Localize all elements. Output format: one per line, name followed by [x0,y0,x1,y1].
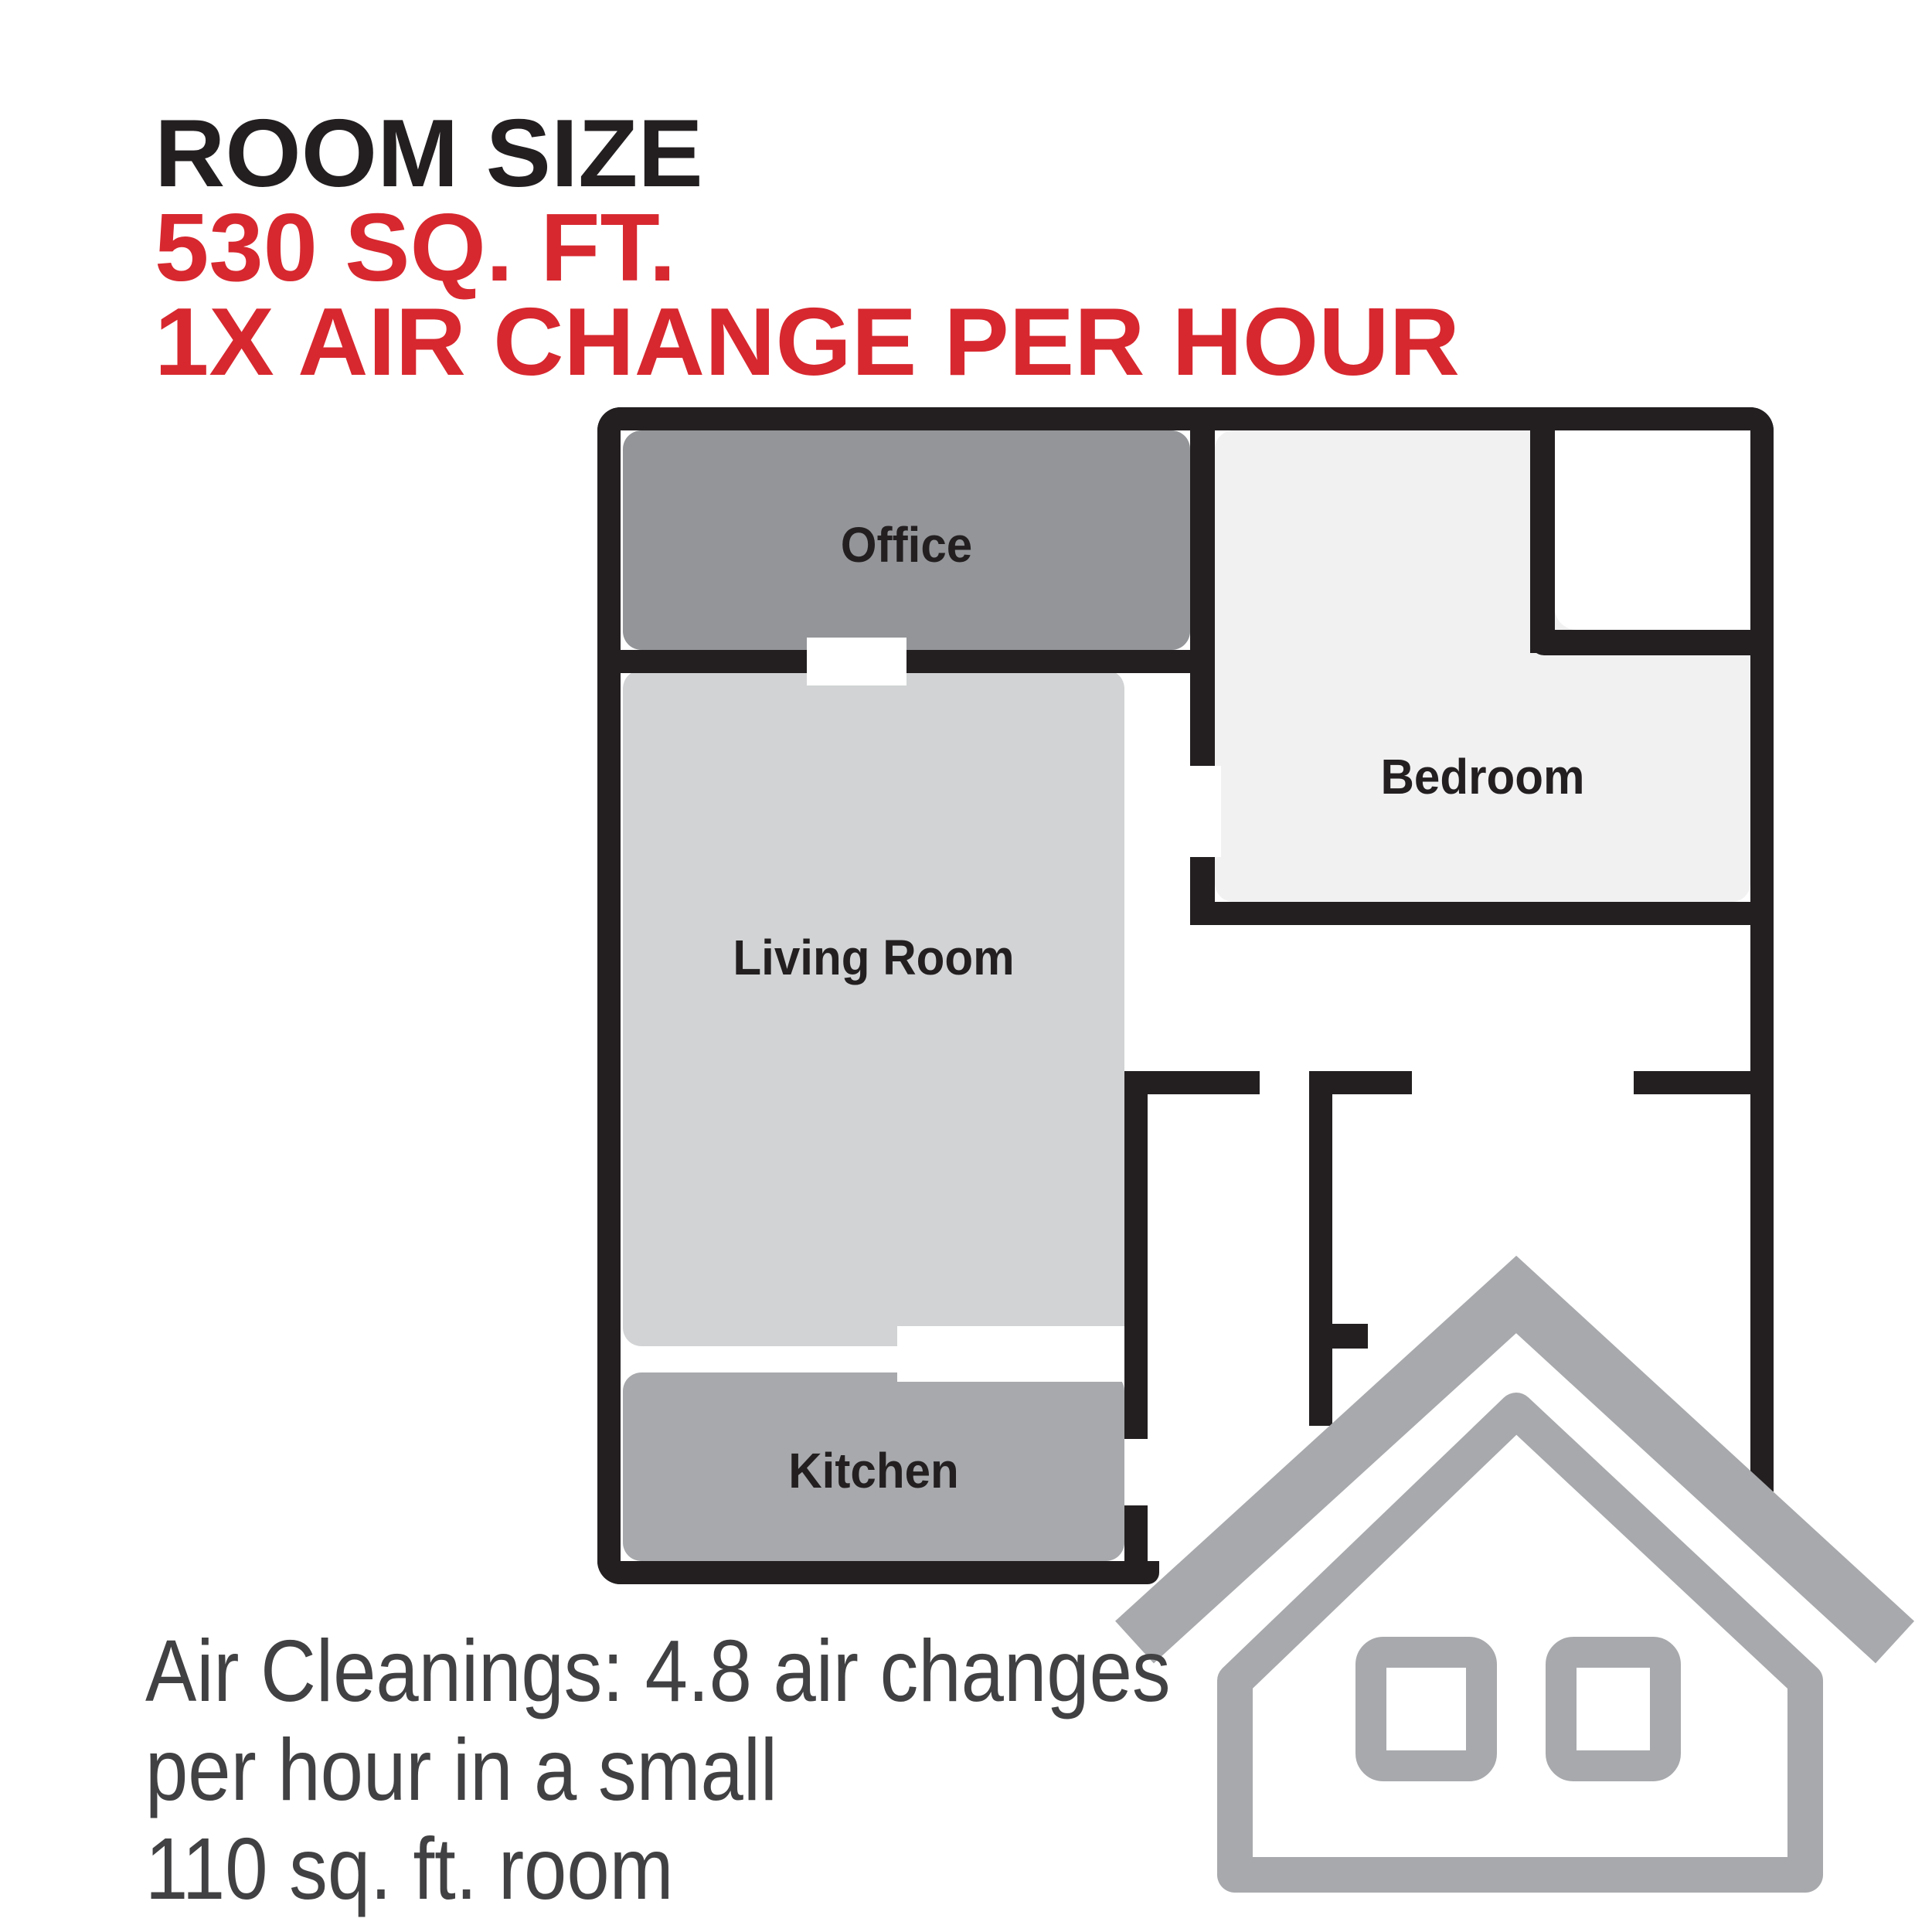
door-office [807,638,906,685]
wall-office-bedroom-divider [1190,407,1215,766]
wall-hall-top-a [1124,1071,1260,1094]
room-living [623,670,1124,1346]
header: ROOM SIZE 530 SQ. FT. 1X AIR CHANGE PER … [155,107,1434,389]
caption-line-2: per hour in a small [145,1720,1171,1819]
label-office: Office [640,516,1173,573]
wall-closet-bottom [1530,630,1774,655]
caption-line-3: 110 sq. ft. room [145,1819,1171,1918]
label-bedroom: Bedroom [1231,748,1734,805]
room-size-value: 530 SQ. FT. [155,201,1460,295]
door-bedroom [1184,766,1221,857]
bedroom-closet-cutout [1555,430,1750,630]
caption: Air Cleanings: 4.8 air changes per hour … [145,1621,1311,1918]
wall-outer-top [597,407,1774,430]
wall-outer-bottom [597,1561,1159,1584]
wall-bedroom-bottom [1190,902,1774,925]
wall-office-bottom-right [906,650,1215,673]
house-window-right [1561,1652,1665,1766]
wall-outer-left [597,407,621,1584]
wall-hall-top-c [1634,1071,1750,1094]
wall-closet-left [1530,407,1555,653]
infographic-room-size: ROOM SIZE 530 SQ. FT. 1X AIR CHANGE PER … [0,0,1932,1932]
label-kitchen: Kitchen [638,1442,1109,1499]
air-change-rate: 1X AIR CHANGE PER HOUR [155,295,1460,389]
label-living-room: Living Room [638,929,1109,986]
wall-office-bottom-left [597,650,807,673]
page-title: ROOM SIZE [155,107,1460,201]
caption-line-1: Air Cleanings: 4.8 air changes [145,1621,1171,1720]
house-window-left [1371,1652,1481,1766]
